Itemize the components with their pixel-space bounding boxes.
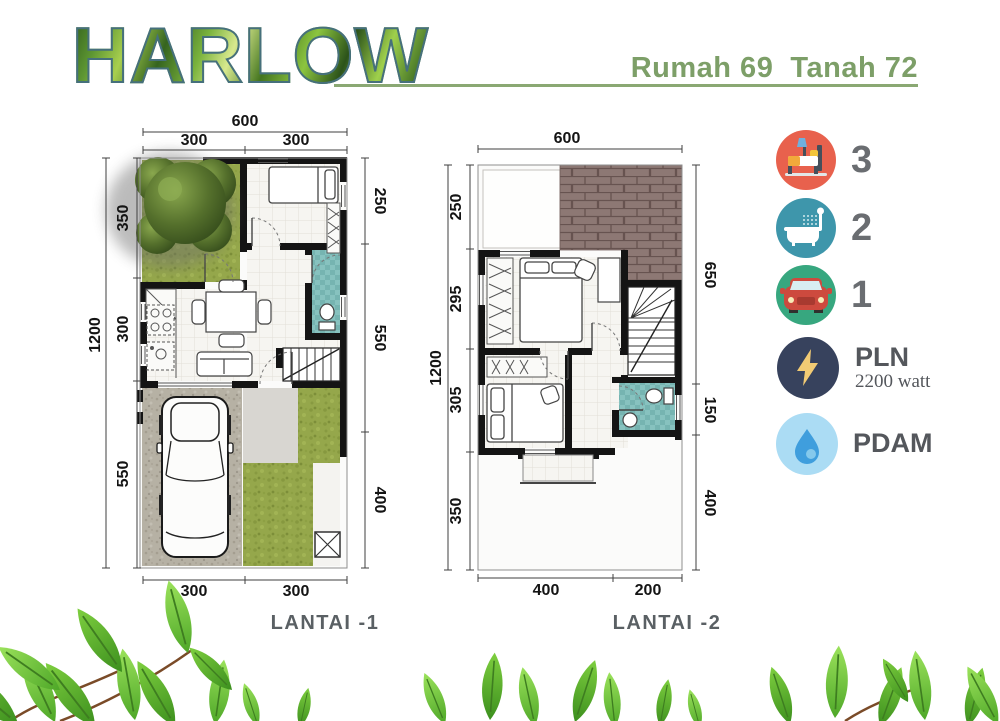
plan1-back-garden <box>243 463 313 566</box>
plan2-balcony <box>520 455 596 483</box>
plan2-dim-left-4: 350 <box>448 498 466 525</box>
lightning-icon <box>776 336 840 400</box>
water-drop-icon <box>776 413 838 475</box>
plan1-toilet <box>319 304 335 330</box>
plan2-dim-right-1: 650 <box>700 262 718 289</box>
plan1-drawing <box>106 152 347 568</box>
plan2-void <box>483 170 560 248</box>
plan2-master-bed <box>520 258 582 342</box>
plan1-bed <box>269 167 338 203</box>
plan1-dim-left-3: 550 <box>115 461 133 488</box>
bathrooms-count: 2 <box>851 207 872 250</box>
water-label: PDAM <box>853 429 933 458</box>
legend-row-bathrooms: 2 <box>776 198 872 258</box>
plan2-drawing <box>478 165 682 570</box>
plan1-dim-top-left: 300 <box>181 132 208 150</box>
plan1-bathroom <box>312 250 340 333</box>
subtitle: Rumah 69 Tanah 72 <box>631 52 918 85</box>
plan1-dim-left-total: 1200 <box>87 317 105 353</box>
legend-row-bedrooms: 3 <box>776 130 872 190</box>
page-title: HARLOW <box>72 16 429 94</box>
plan2-dim-left-1: 250 <box>448 194 466 221</box>
plan2-wardrobe2 <box>487 357 547 377</box>
electricity-label: PLN <box>855 343 930 372</box>
plan1-dim-right-1: 250 <box>370 188 388 215</box>
plan1-car <box>157 397 233 557</box>
plan2-dim-right-2: 150 <box>700 397 718 424</box>
bath-icon <box>776 198 836 258</box>
plan2-dim-left-3: 305 <box>448 387 466 414</box>
plan1-dim-top-right: 300 <box>283 132 310 150</box>
plan1-dim-right-2: 550 <box>370 325 388 352</box>
plan2-label: LANTAI -2 <box>613 612 722 635</box>
plan1-dim-top-total: 600 <box>232 113 259 131</box>
electricity-detail: 2200 watt <box>855 372 930 393</box>
plan1-kitchen <box>146 289 176 378</box>
car-icon <box>776 265 836 325</box>
plan2-dim-bottom-right: 200 <box>635 582 662 600</box>
plan1-dim-left-2: 300 <box>115 316 133 343</box>
plan2-dim-left-total: 1200 <box>428 350 446 386</box>
plan1-dim-right-3: 400 <box>370 487 388 514</box>
leaves-decoration <box>0 578 1000 721</box>
plan2-dim-top-total: 600 <box>554 130 581 148</box>
plan1-wardrobe <box>327 203 340 253</box>
plan2-wardrobe <box>487 258 513 344</box>
plan1-path <box>243 388 298 463</box>
plan2-dim-right-3: 400 <box>700 490 718 517</box>
plan1-label: LANTAI -1 <box>271 612 380 635</box>
legend-row-carport: 1 <box>776 265 872 325</box>
legend-row-electricity: PLN 2200 watt <box>776 336 930 400</box>
harlow-floorplan-poster: HARLOW Rumah 69 Tanah 72 600 300 300 350… <box>0 0 1000 721</box>
plan1-dim-bottom-right: 300 <box>283 583 310 601</box>
plan1-dim-left-1: 350 <box>115 205 133 232</box>
plan1-utility-box <box>315 532 340 557</box>
plan2-stairs <box>628 287 675 375</box>
plan2-dim-left-2: 295 <box>448 286 466 313</box>
bedrooms-count: 3 <box>851 139 872 182</box>
plan1-sofa <box>197 352 252 376</box>
carport-count: 1 <box>851 274 872 317</box>
plan2-dim-bottom-left: 400 <box>533 582 560 600</box>
legend-row-water: PDAM <box>776 413 933 475</box>
bed-icon <box>776 130 836 190</box>
plan1-dim-bottom-left: 300 <box>181 583 208 601</box>
